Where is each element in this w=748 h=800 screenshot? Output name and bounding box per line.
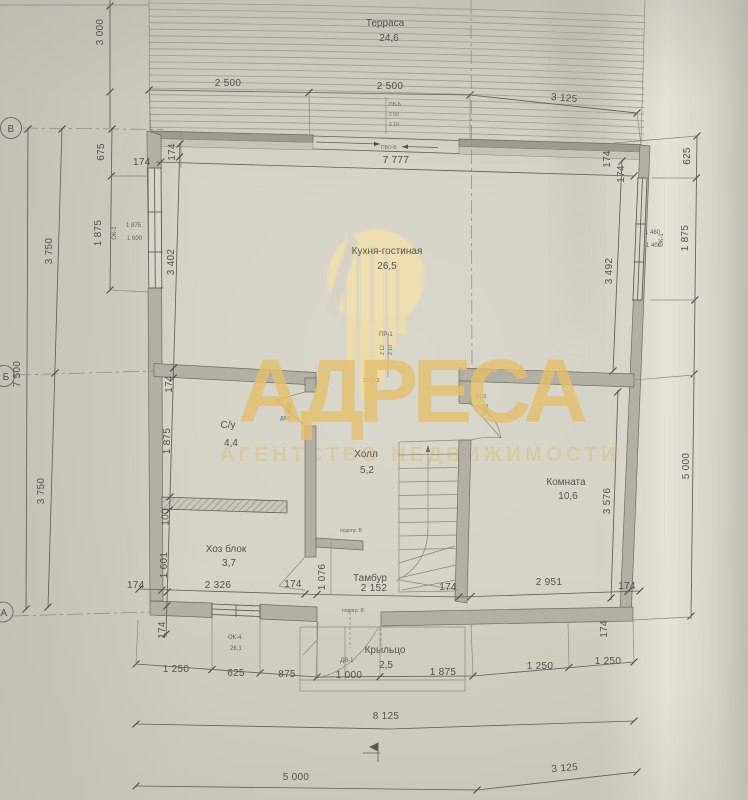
svg-text:3 125: 3 125: [551, 92, 579, 105]
svg-text:3 576: 3 576: [602, 488, 613, 515]
svg-text:174: 174: [133, 157, 151, 168]
svg-text:Комната: Комната: [546, 477, 586, 488]
svg-text:Хоз блок: Хоз блок: [206, 543, 247, 555]
svg-text:625: 625: [682, 147, 693, 165]
svg-text:Крыльцо: Крыльцо: [365, 645, 406, 656]
svg-text:5 000: 5 000: [283, 772, 310, 783]
svg-text:1 875: 1 875: [162, 428, 173, 455]
svg-text:174: 174: [599, 620, 610, 638]
svg-text:АГЕНТСТВО НЕДВИЖИМОСТИ: АГЕНТСТВО НЕДВИЖИМОСТИ: [220, 444, 620, 466]
svg-text:С/у: С/у: [221, 420, 236, 431]
svg-text:174: 174: [127, 580, 145, 591]
svg-text:875: 875: [278, 669, 296, 680]
svg-text:3,7: 3,7: [222, 558, 236, 569]
svg-text:1 875: 1 875: [680, 225, 691, 252]
svg-text:ОК-1: ОК-1: [659, 233, 665, 247]
svg-text:174: 174: [439, 582, 457, 593]
svg-text:2 326: 2 326: [205, 580, 232, 591]
svg-text:100: 100: [161, 508, 172, 526]
svg-text:подогр. В: подогр. В: [340, 528, 362, 534]
svg-text:8 125: 8 125: [373, 711, 400, 722]
svg-text:10,6: 10,6: [558, 491, 578, 502]
svg-text:ПР-1: ПР-1: [379, 332, 393, 338]
svg-text:3 492: 3 492: [604, 258, 615, 285]
svg-text:подогр. В: подогр. В: [342, 608, 364, 614]
svg-text:1 875: 1 875: [126, 223, 142, 229]
svg-text:А: А: [1, 608, 8, 619]
svg-text:ПВО-Б: ПВО-Б: [381, 145, 397, 151]
svg-text:24,6: 24,6: [379, 33, 399, 44]
svg-text:3 750: 3 750: [36, 478, 47, 505]
svg-text:ПВ-Б: ПВ-Б: [389, 102, 402, 108]
svg-text:7 777: 7 777: [383, 155, 410, 166]
svg-text:АДРЕСА: АДРЕСА: [238, 342, 586, 442]
svg-text:2 50: 2 50: [389, 112, 399, 118]
svg-text:2 500: 2 500: [377, 81, 404, 92]
svg-text:2,5: 2,5: [379, 660, 393, 671]
svg-text:7 500: 7 500: [12, 361, 23, 388]
svg-text:2 10: 2 10: [389, 122, 399, 128]
svg-text:1 250: 1 250: [595, 656, 622, 667]
svg-text:174: 174: [164, 375, 175, 393]
svg-text:1 250: 1 250: [163, 664, 190, 675]
svg-text:174: 174: [157, 621, 168, 639]
svg-text:ОК-4: ОК-4: [228, 635, 242, 641]
svg-text:3 000: 3 000: [95, 19, 106, 46]
svg-text:5,2: 5,2: [360, 465, 374, 476]
svg-text:174: 174: [284, 579, 302, 590]
svg-text:174: 174: [618, 581, 636, 592]
svg-text:Терраса: Терраса: [366, 18, 405, 29]
svg-text:26,1: 26,1: [230, 646, 242, 652]
svg-text:Холл: Холл: [354, 449, 378, 460]
svg-text:1 250: 1 250: [527, 661, 554, 672]
svg-text:1 875: 1 875: [430, 667, 457, 678]
svg-text:625: 625: [227, 668, 245, 679]
svg-text:5 000: 5 000: [681, 453, 692, 480]
svg-text:Кухня-гостиная: Кухня-гостиная: [352, 246, 423, 257]
svg-text:1 601: 1 601: [159, 552, 170, 579]
svg-text:1 600: 1 600: [127, 236, 143, 242]
svg-text:ОК-1: ОК-1: [112, 226, 118, 240]
svg-text:1 076: 1 076: [317, 564, 328, 591]
svg-text:Тамбур: Тамбур: [353, 572, 387, 584]
svg-text:2 152: 2 152: [361, 583, 388, 594]
svg-text:2 500: 2 500: [215, 78, 242, 89]
svg-text:В: В: [8, 124, 15, 135]
svg-text:3 125: 3 125: [551, 762, 579, 775]
svg-text:2 951: 2 951: [536, 577, 563, 588]
svg-text:1 875: 1 875: [93, 220, 104, 247]
svg-text:Б: Б: [3, 372, 10, 383]
svg-text:675: 675: [96, 143, 107, 161]
svg-text:174: 174: [602, 150, 613, 168]
svg-text:1 000: 1 000: [336, 670, 363, 681]
svg-text:ДВ-1: ДВ-1: [340, 658, 354, 664]
svg-text:3 750: 3 750: [44, 238, 55, 265]
svg-text:174: 174: [167, 143, 178, 161]
svg-text:3 402: 3 402: [166, 249, 177, 276]
svg-text:4,4: 4,4: [224, 438, 238, 449]
svg-text:26,5: 26,5: [377, 261, 397, 272]
